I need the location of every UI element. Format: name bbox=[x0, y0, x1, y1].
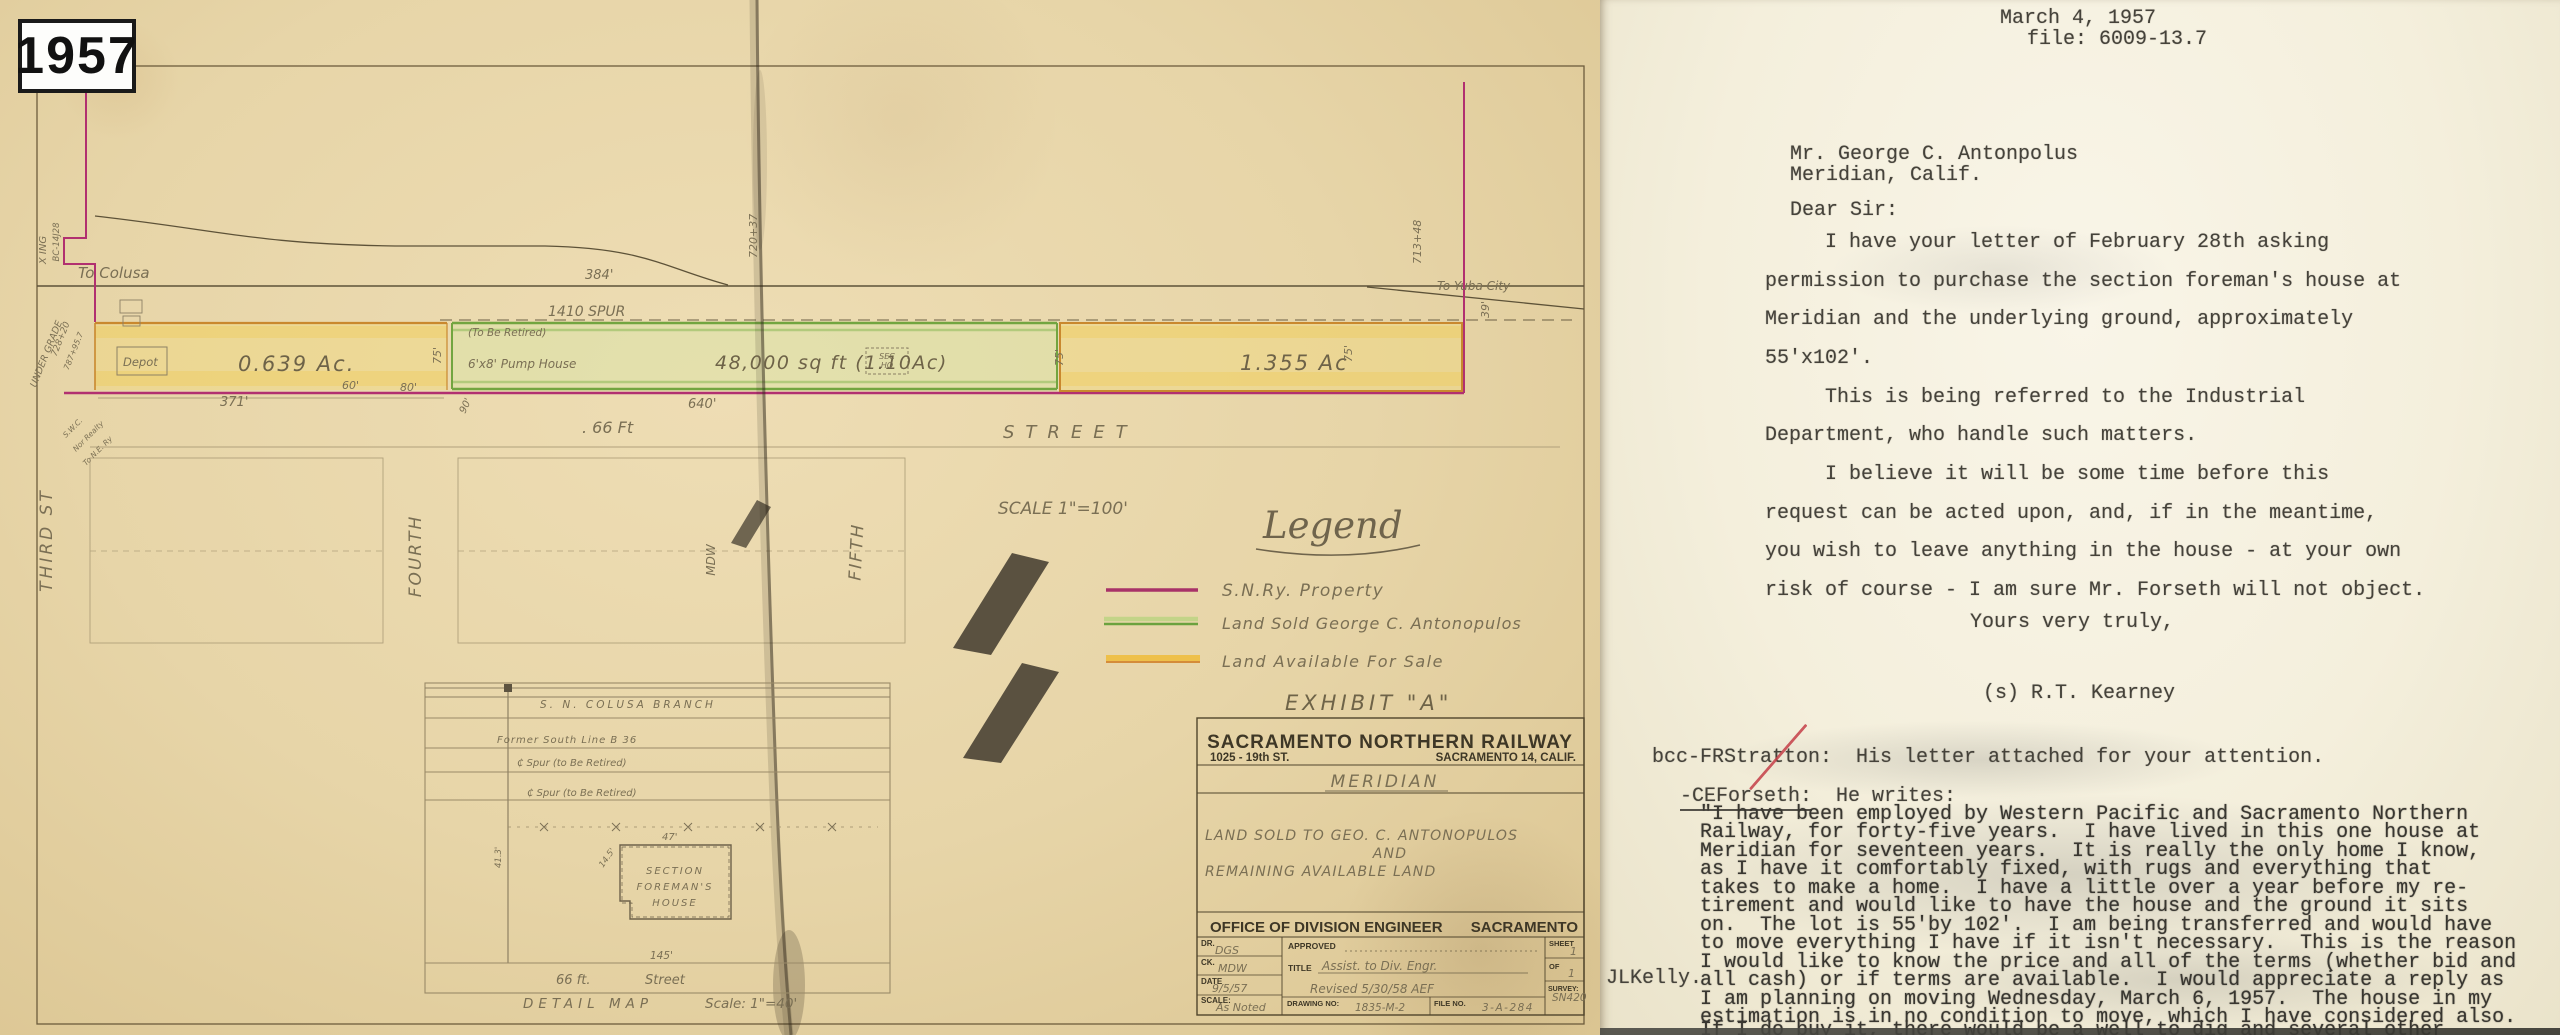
survey-map-drawing: To Colusa To Yuba City 720+37 713+48 39'… bbox=[0, 0, 1600, 1035]
street-label: STREET bbox=[1003, 422, 1138, 443]
of-label: OF bbox=[1549, 962, 1560, 971]
body-line: Department, who handle such matters. bbox=[1765, 425, 2197, 447]
title-block: SACRAMENTO NORTHERN RAILWAY 1025 - 19th … bbox=[1197, 718, 1587, 1015]
scanned-documents: To Colusa To Yuba City 720+37 713+48 39'… bbox=[0, 0, 2560, 1035]
date-value: 9/5/57 bbox=[1212, 982, 1247, 995]
third-street-label: THIRD ST bbox=[37, 488, 57, 592]
letter-file-number: file: 6009-13.7 bbox=[2027, 29, 2207, 51]
scan-edge bbox=[1600, 1028, 2560, 1035]
to-be-retired-label: (To Be Retired) bbox=[468, 327, 546, 339]
location-name: MERIDIAN bbox=[1331, 772, 1440, 792]
year-badge: 1957 bbox=[18, 19, 136, 93]
hatch-marks bbox=[731, 500, 1059, 763]
detail-dim-145: 145' bbox=[650, 950, 673, 962]
sheet-value: 1 bbox=[1570, 945, 1577, 958]
acreage-left-label: 0.639 Ac. bbox=[238, 352, 355, 376]
legend-item-snry: S.N.Ry. Property bbox=[1222, 581, 1384, 601]
salutation: Dear Sir: bbox=[1790, 200, 1898, 222]
dim-75c-label: 75' bbox=[1342, 345, 1355, 362]
dim-90-label: 90' bbox=[458, 397, 475, 416]
detail-caption-scale: Scale: 1"=40' bbox=[705, 996, 797, 1012]
sqft-label: 48,000 sq ft (1.10Ac) bbox=[715, 352, 948, 374]
title-label: TITLE bbox=[1288, 963, 1312, 973]
parcel-left-available bbox=[95, 300, 447, 390]
ck-label: CK. bbox=[1201, 958, 1215, 967]
dr-value: DGS bbox=[1215, 944, 1239, 957]
bc-note: BC-14J28 bbox=[52, 222, 62, 262]
bcc-line: bcc-FRStratton: His letter attached for … bbox=[1652, 747, 2324, 769]
closing: Yours very truly, bbox=[1970, 612, 2174, 634]
station-713-label: 713+48 bbox=[1411, 220, 1424, 264]
body-line: request can be acted upon, and, if in th… bbox=[1765, 503, 2377, 525]
drawing-label: DRAWING NO: bbox=[1287, 999, 1339, 1008]
survey-value: SN420 bbox=[1552, 992, 1587, 1004]
detail-street-width: 66 ft. bbox=[556, 973, 590, 988]
dim-640-label: 640' bbox=[688, 397, 716, 412]
body-line: permission to purchase the section forem… bbox=[1765, 271, 2401, 293]
scale-value: As Noted bbox=[1215, 1001, 1267, 1014]
letter-date: March 4, 1957 bbox=[2000, 8, 2156, 30]
description-line-3: REMAINING AVAILABLE LAND bbox=[1205, 864, 1436, 880]
dim-80-label: 80' bbox=[400, 381, 417, 394]
fifth-street-label: FIFTH bbox=[846, 522, 869, 581]
to-yuba-city-label: To Yuba City bbox=[1437, 279, 1511, 293]
railway-tracks bbox=[37, 216, 1584, 320]
xing-note: X ING bbox=[38, 236, 49, 265]
dr-label: DR. bbox=[1201, 939, 1215, 948]
description-line-2: AND bbox=[1372, 846, 1407, 862]
approved-label: APPROVED bbox=[1288, 941, 1336, 951]
recipient-name: Mr. George C. Antonpolus bbox=[1790, 144, 2078, 166]
office-label: OFFICE OF DIVISION ENGINEER bbox=[1210, 919, 1443, 936]
description-line-1: LAND SOLD TO GEO. C. ANTONOPULOS bbox=[1205, 828, 1518, 844]
scale-note-label: SCALE 1"=100' bbox=[998, 499, 1128, 519]
section-house-abbrev-1: SEC bbox=[879, 352, 895, 361]
body-line: risk of course - I am sure Mr. Forseth w… bbox=[1765, 580, 2425, 602]
legend-title: Legend bbox=[1262, 504, 1403, 547]
dim-60-label: 60' bbox=[342, 379, 359, 392]
detail-spur2-label: ₵ Spur (to Be Retired) bbox=[527, 788, 637, 799]
legend-item-sold: Land Sold George C. Antonopulos bbox=[1222, 614, 1522, 633]
signature: (s) R.T. Kearney bbox=[1983, 683, 2175, 705]
title-value: Assist. to Div. Engr. bbox=[1321, 959, 1437, 973]
ck-value: MDW bbox=[1218, 962, 1248, 975]
company-city: SACRAMENTO 14, CALIF. bbox=[1436, 752, 1576, 764]
recipient-city: Meridian, Calif. bbox=[1790, 165, 1982, 187]
dim-75b-label: 75' bbox=[1053, 349, 1066, 366]
body-line: Meridian and the underlying ground, appr… bbox=[1765, 309, 2353, 331]
street-width-label: . 66 Ft bbox=[582, 418, 634, 437]
body-line: I have your letter of February 28th aski… bbox=[1825, 232, 2329, 254]
detail-spur1-label: ₵ Spur (to Be Retired) bbox=[517, 758, 627, 769]
legend-item-available: Land Available For Sale bbox=[1222, 652, 1444, 671]
company-name: SACRAMENTO NORTHERN RAILWAY bbox=[1207, 732, 1573, 753]
body-line: 55'x102'. bbox=[1765, 348, 1873, 370]
dim-39-label: 39' bbox=[1479, 301, 1492, 318]
depot-label: Depot bbox=[123, 355, 158, 369]
foreman-house-line1: SECTION bbox=[646, 866, 704, 877]
letter-page: March 4, 1957 file: 6009-13.7 Mr. George… bbox=[1600, 0, 2560, 1035]
foreman-house-line3: HOUSE bbox=[652, 898, 697, 909]
survey-map-page: To Colusa To Yuba City 720+37 713+48 39'… bbox=[0, 0, 1600, 1035]
fourth-street-label: FOURTH bbox=[406, 515, 426, 598]
map-legend: Legend S.N.Ry. Property Land Sold George… bbox=[1104, 504, 1522, 715]
fold-crease bbox=[753, 0, 805, 1035]
section-house-abbrev-2: HO bbox=[881, 361, 893, 370]
to-colusa-label: To Colusa bbox=[78, 264, 150, 282]
dim-371-label: 371' bbox=[220, 395, 248, 410]
detail-caption: DETAIL MAP bbox=[523, 996, 653, 1012]
spur-name-label: 1410 SPUR bbox=[548, 304, 625, 320]
body-line: This is being referred to the Industrial bbox=[1825, 387, 2305, 409]
detail-map-inset: S. N. COLUSA BRANCH Former South Line B … bbox=[425, 683, 890, 1012]
detail-dim-47: 47' bbox=[662, 832, 677, 843]
revised-note: Revised 5/30/58 AEF bbox=[1310, 982, 1435, 996]
mdw-initials: MDW bbox=[704, 543, 718, 576]
acreage-right-label: 1.355 Ac bbox=[1240, 351, 1349, 375]
drawing-value: 1835-M-2 bbox=[1355, 1002, 1405, 1014]
dim-384-label: 384' bbox=[585, 268, 613, 283]
pump-house-label: 6'x8' Pump House bbox=[468, 357, 576, 371]
detail-street-name: Street bbox=[645, 973, 686, 988]
body-line: you wish to leave anything in the house … bbox=[1765, 541, 2401, 563]
station-720-label: 720+37 bbox=[747, 214, 760, 258]
detail-branch-label: S. N. COLUSA BRANCH bbox=[540, 699, 716, 711]
detail-dim-41-3: 41.3' bbox=[494, 847, 504, 868]
office-city-label: SACRAMENTO bbox=[1471, 919, 1579, 936]
of-value: 1 bbox=[1568, 967, 1575, 980]
file-label: FILE NO. bbox=[1434, 999, 1466, 1008]
detail-dim-14-5: 14.5' bbox=[597, 847, 617, 870]
company-address: 1025 - 19th ST. bbox=[1210, 752, 1289, 764]
dim-75a-label: 75' bbox=[431, 347, 444, 364]
margin-initials: JLKelly. bbox=[1606, 968, 1702, 990]
foreman-house-line2: FOREMAN'S bbox=[637, 882, 714, 893]
exhibit-label: EXHIBIT "A" bbox=[1285, 691, 1452, 715]
file-value: 3-A-284 bbox=[1482, 1002, 1534, 1014]
detail-former-line-label: Former South Line B 36 bbox=[497, 735, 637, 746]
body-line: I believe it will be some time before th… bbox=[1825, 464, 2329, 486]
